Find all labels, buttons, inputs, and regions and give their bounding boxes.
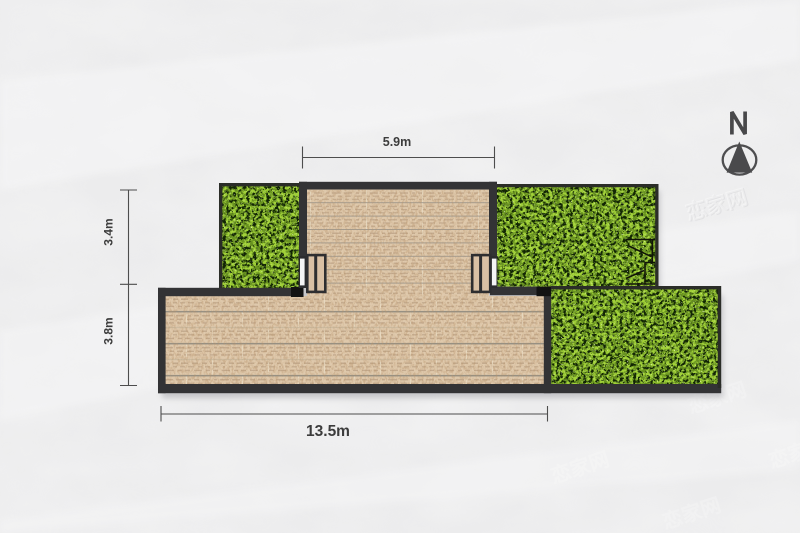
svg-text:13.5m: 13.5m (306, 423, 350, 440)
svg-text:3.4m: 3.4m (102, 218, 116, 245)
svg-text:5.9m: 5.9m (383, 135, 412, 149)
svg-text:3.8m: 3.8m (102, 317, 116, 344)
